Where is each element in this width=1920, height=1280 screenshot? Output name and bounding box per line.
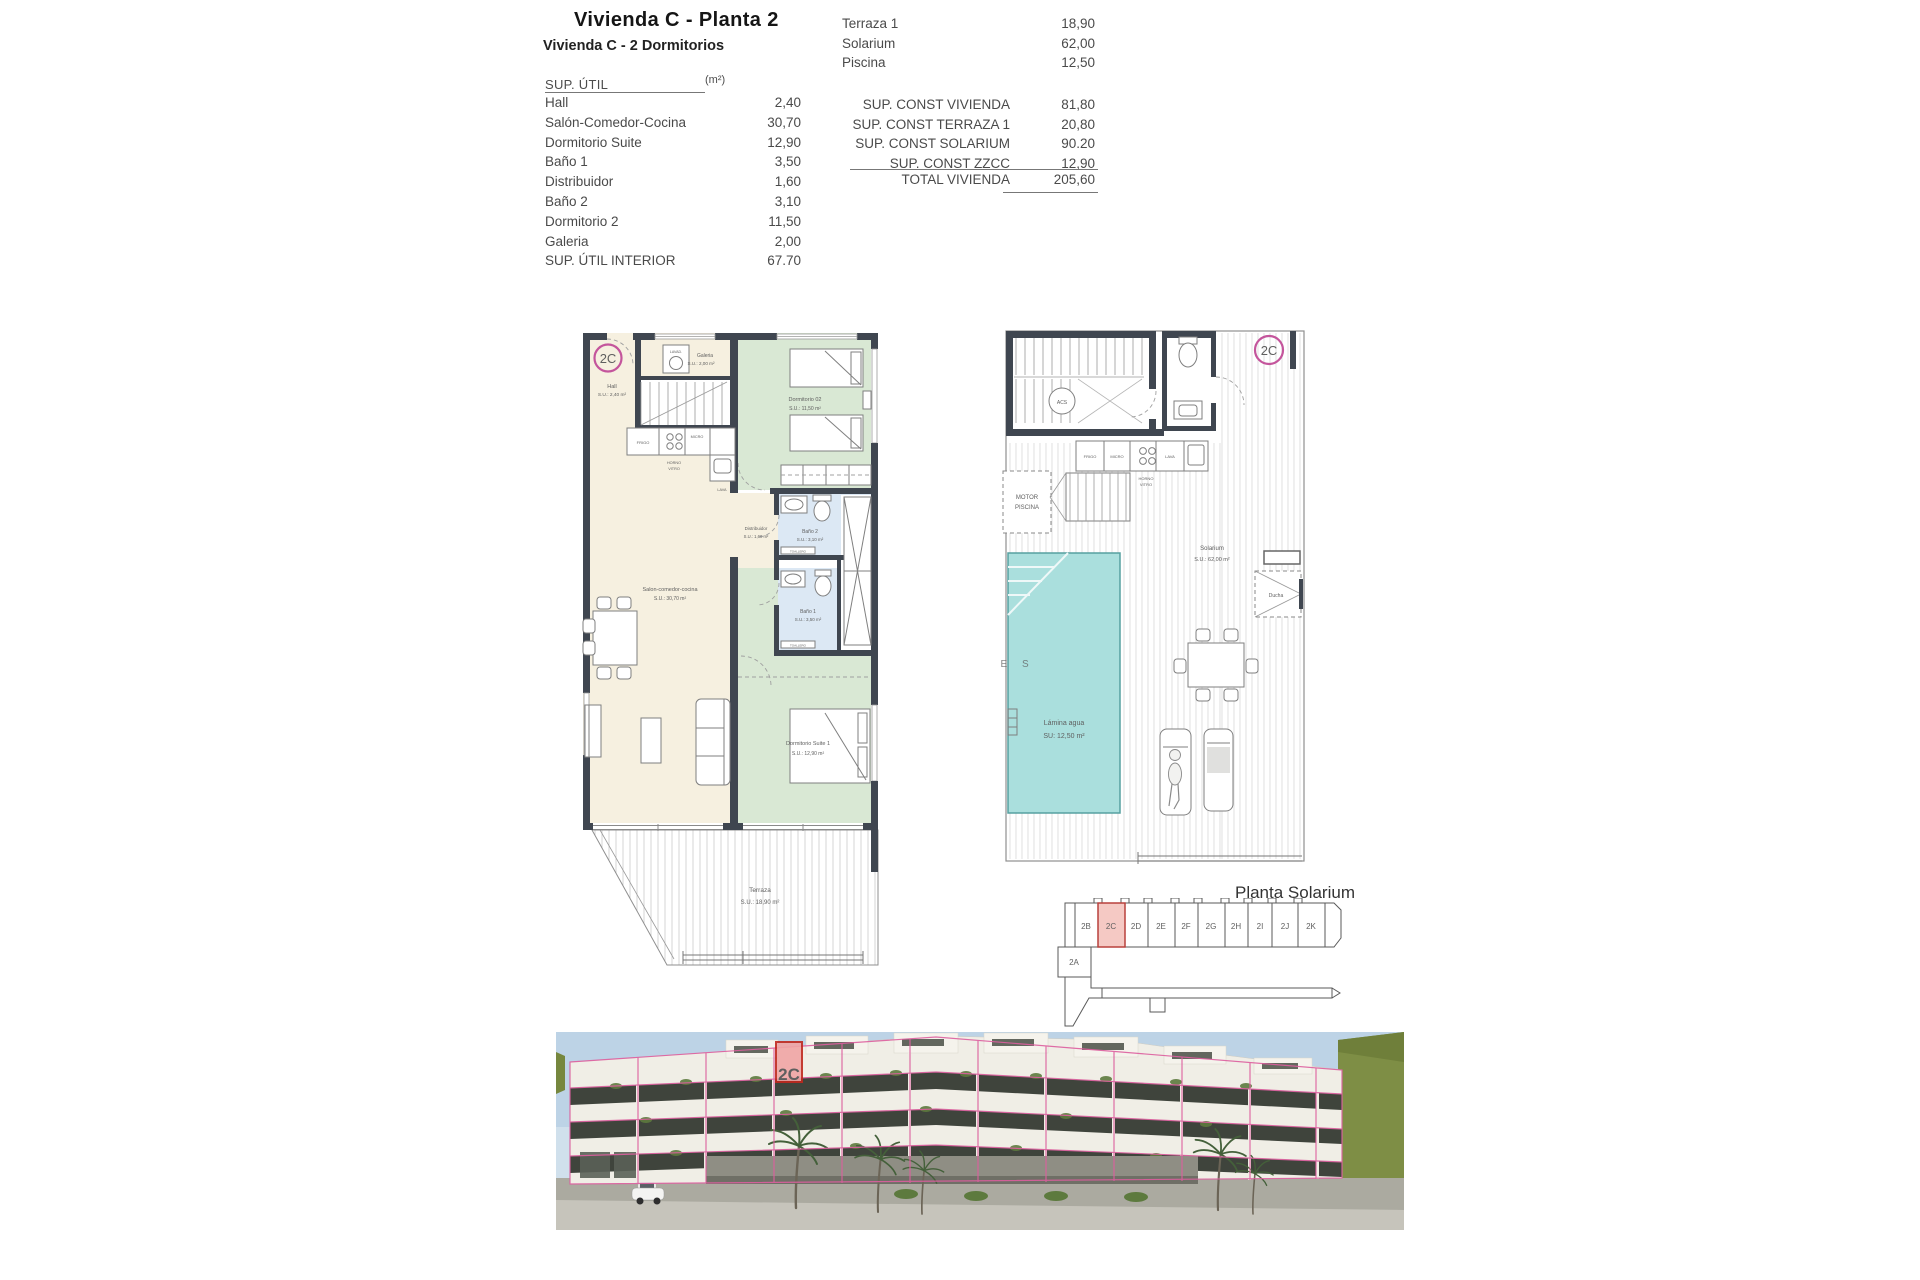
svg-text:2F: 2F <box>1181 922 1190 931</box>
frigo-label: FRIGO <box>1084 454 1097 459</box>
sofa-icon <box>696 699 730 785</box>
row-label: SUP. CONST SOLARIUM <box>850 134 1010 154</box>
table-row: Solarium62,00 <box>842 34 1095 54</box>
key-label-highlight: 2C <box>1106 922 1116 931</box>
const-table: SUP. CONST VIVIENDA81,80 SUP. CONST TERR… <box>850 95 1095 173</box>
galeria-label: Galeria <box>697 353 713 359</box>
table-row: Baño 23,10 <box>545 192 801 212</box>
row-value: 2,00 <box>775 232 801 252</box>
unit-badge: 2C <box>1261 343 1278 358</box>
row-label: Galeria <box>545 232 589 252</box>
total-rule-top <box>850 169 1098 170</box>
bano1-label: Baño 1 <box>800 609 816 615</box>
row-value: 20,80 <box>1010 115 1095 135</box>
table-row: SUP. ÚTIL INTERIOR67.70 <box>545 251 801 271</box>
horno-label: HORNO <box>1139 476 1154 481</box>
svg-text:2H: 2H <box>1231 922 1241 931</box>
table-row: SUP. CONST SOLARIUM90.20 <box>850 134 1095 154</box>
row-label: Hall <box>545 93 568 113</box>
suite-size: S.U.: 12,90 m² <box>792 751 825 757</box>
svg-text:2A: 2A <box>1069 958 1079 967</box>
row-label: Salón-Comedor-Cocina <box>545 113 686 133</box>
row-value: 67.70 <box>767 251 801 271</box>
svg-text:2D: 2D <box>1131 922 1141 931</box>
row-value: 3,50 <box>775 152 801 172</box>
hill-left <box>556 1052 565 1094</box>
toilet-icon <box>815 570 831 576</box>
total-value: 205,60 <box>1010 172 1095 187</box>
svg-text:TOALLERO: TOALLERO <box>790 644 807 648</box>
frigo-label: FRIGO <box>637 440 650 445</box>
key-corridor <box>1102 988 1332 998</box>
watermark: M E S <box>998 659 1035 670</box>
floor-plan-solarium: ACS 2C FRIGO MICRO LAVA <box>998 323 1328 883</box>
galeria-size: S.U.: 2,00 m² <box>687 361 715 366</box>
sup-util-table: Hall2,40 Salón-Comedor-Cocina30,70 Dormi… <box>545 93 801 271</box>
key-plan: 2B 2C 2D 2E 2F 2G 2H 2I 2J 2K 2A <box>1053 898 1363 1043</box>
plan-sheet: Vivienda C - Planta 2 Vivienda C - 2 Dor… <box>0 0 1920 1280</box>
row-label: Solarium <box>842 34 895 54</box>
row-label: Dormitorio Suite <box>545 133 642 153</box>
row-label: Baño 1 <box>545 152 588 172</box>
row-label: Terraza 1 <box>842 14 898 34</box>
micro-label: MICRO <box>691 435 704 439</box>
row-value: 12,50 <box>1061 53 1095 73</box>
outdoor-table-icon <box>1188 643 1244 687</box>
stairs-zone <box>638 380 733 428</box>
table-row: Hall2,40 <box>545 93 801 113</box>
table-row: Baño 13,50 <box>545 152 801 172</box>
terraza-label: Terraza <box>749 887 771 894</box>
unit-badge: 2C <box>600 351 617 366</box>
vitro-label: VITRO <box>668 467 680 471</box>
horno-label: HORNO <box>667 461 681 465</box>
table-row: Distribuidor1,60 <box>545 172 801 192</box>
solarium-label: Solarium <box>1200 546 1224 552</box>
bed-icon <box>790 349 863 387</box>
window <box>872 349 877 443</box>
row-value: 18,90 <box>1061 14 1095 34</box>
row-value: 3,10 <box>775 192 801 212</box>
room-passage <box>733 568 778 655</box>
row-value: 30,70 <box>767 113 801 133</box>
dorm2-label: Dormitorio 02 <box>788 397 821 403</box>
row-label: Baño 2 <box>545 192 588 212</box>
marker-label: 2C <box>778 1065 800 1084</box>
sup-util-unit: (m²) <box>705 74 725 86</box>
row-value: 90.20 <box>1010 134 1095 154</box>
chair-icon <box>597 597 611 609</box>
row-value: 1,60 <box>775 172 801 192</box>
motor-label: MOTOR <box>1016 495 1039 501</box>
person-figure <box>1170 750 1181 761</box>
row-value: 62,00 <box>1061 34 1095 54</box>
svg-text:2J: 2J <box>1281 922 1289 931</box>
exterior-table: Terraza 118,90 Solarium62,00 Piscina12,5… <box>842 14 1095 73</box>
row-label: Piscina <box>842 53 886 73</box>
distribuidor-label: Distribuidor <box>745 526 768 531</box>
svg-text:TOALLERO: TOALLERO <box>790 550 807 554</box>
dining-table-icon <box>593 611 637 665</box>
bano2-size: S.U.: 3,10 m² <box>797 537 824 542</box>
pool-label: Lámina agua <box>1044 720 1085 727</box>
tv-unit-icon <box>641 718 661 763</box>
svg-text:2G: 2G <box>1206 922 1217 931</box>
table-row: SUP. CONST TERRAZA 120,80 <box>850 115 1095 135</box>
distribuidor-size: S.U.: 1,60 m² <box>744 534 769 539</box>
row-value: 81,80 <box>1010 95 1095 115</box>
building-render: 2C <box>556 1032 1404 1230</box>
window <box>872 705 877 781</box>
row-value: 12,90 <box>1010 154 1095 174</box>
table-row: Salón-Comedor-Cocina30,70 <box>545 113 801 133</box>
solarium-size: S.U.: 62,00 m² <box>1194 557 1230 563</box>
table-row: Dormitorio Suite12,90 <box>545 133 801 153</box>
total-rule-bottom <box>1003 192 1098 193</box>
table-row: Dormitorio 211,50 <box>545 212 801 232</box>
sup-util-header: SUP. ÚTIL <box>545 77 608 92</box>
hall-size: S.U.: 2,40 m² <box>598 392 627 398</box>
salon-size: S.U.: 30,70 m² <box>654 596 687 602</box>
row-label: Dormitorio 2 <box>545 212 619 232</box>
svg-text:2E: 2E <box>1156 922 1166 931</box>
table-row: SUP. CONST ZZCC12,90 <box>850 154 1095 174</box>
bench-icon <box>1264 551 1300 564</box>
row-label: SUP. CONST ZZCC <box>850 154 1010 174</box>
shelf-icon <box>585 705 601 757</box>
lava-label: LAVA <box>717 488 727 492</box>
acs-label: ACS <box>1057 400 1068 406</box>
bed-icon <box>790 415 863 451</box>
salon-label: Salon-comedor-cocina <box>642 587 698 593</box>
row-label: SUP. CONST VIVIENDA <box>850 95 1010 115</box>
micro-label: MICRO <box>1110 454 1123 459</box>
row-label: SUP. CONST TERRAZA 1 <box>850 115 1010 135</box>
chair-icon <box>1196 629 1210 641</box>
page-title: Vivienda C - Planta 2 <box>574 9 779 32</box>
table-row: Galeria2,00 <box>545 232 801 252</box>
page-subtitle: Vivienda C - 2 Dormitorios <box>543 38 724 54</box>
row-value: 11,50 <box>768 212 801 232</box>
lavad-label: LAVAD. <box>670 350 682 354</box>
suite-label: Dormitorio Suite 1 <box>786 741 830 747</box>
table-row: Piscina12,50 <box>842 53 1095 73</box>
row-label: Distribuidor <box>545 172 613 192</box>
terraza-size: S.U.: 18,90 m² <box>741 900 780 906</box>
row-value: 12,90 <box>767 133 801 153</box>
table-row: SUP. CONST VIVIENDA81,80 <box>850 95 1095 115</box>
terrace-decking <box>595 830 875 965</box>
hall-label: Hall <box>607 384 616 390</box>
toilet-icon <box>813 495 831 501</box>
dorm2-size: S.U.: 11,50 m² <box>789 406 821 412</box>
unit-marker-2C: 2C <box>776 1042 802 1084</box>
svg-text:2K: 2K <box>1306 922 1316 931</box>
total-label: TOTAL VIVIENDA <box>850 172 1010 187</box>
nightstand-icon <box>863 391 871 409</box>
total-row: TOTAL VIVIENDA 205,60 <box>850 172 1095 187</box>
table-row: Terraza 118,90 <box>842 14 1095 34</box>
lava-label: LAVA <box>1165 454 1175 459</box>
row-value: 2,40 <box>775 93 801 113</box>
pool <box>1008 553 1120 813</box>
pool-size: SU: 12,50 m² <box>1043 733 1085 740</box>
motor-piscina-box <box>1003 471 1051 533</box>
ducha-label: Ducha <box>1269 593 1284 599</box>
floor-plan-vivienda: Terraza S.U.: 18,90 m² <box>575 325 893 980</box>
vitro-label: VITRO <box>1140 482 1152 487</box>
bano2-label: Baño 2 <box>802 529 818 535</box>
row-label: SUP. ÚTIL INTERIOR <box>545 251 676 271</box>
key-label: 2B <box>1081 922 1091 931</box>
bano1-size: S.U.: 3,50 m² <box>795 617 822 622</box>
svg-text:2I: 2I <box>1257 922 1264 931</box>
piscina-label: PISCINA <box>1015 505 1039 511</box>
